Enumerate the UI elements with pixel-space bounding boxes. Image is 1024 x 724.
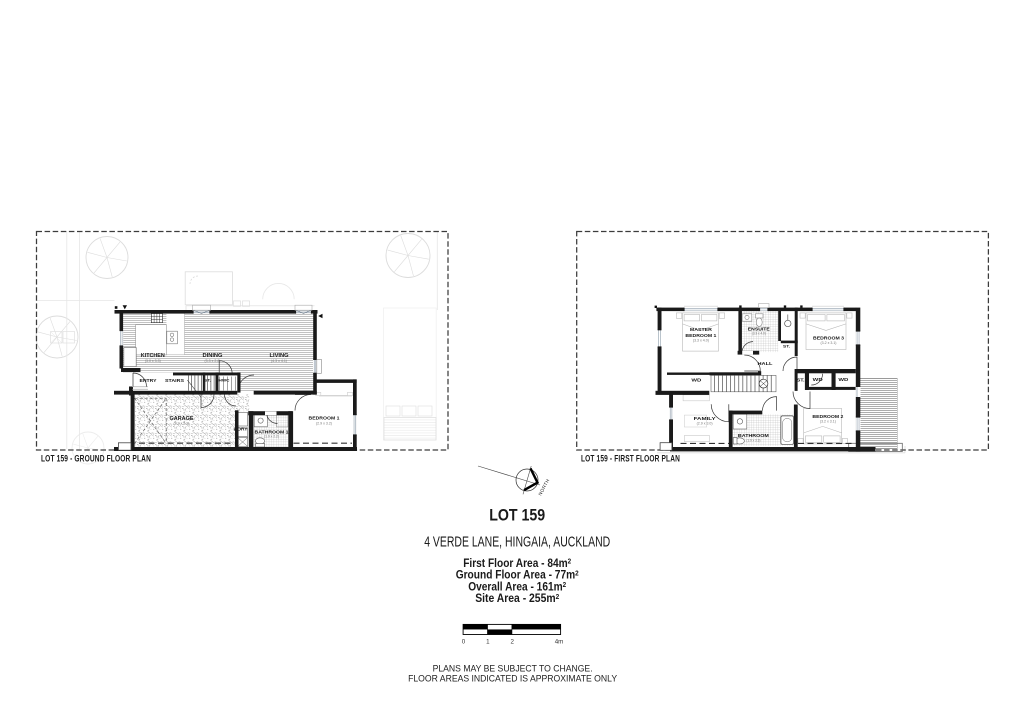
- svg-text:(3.2 x 3.1): (3.2 x 3.1): [821, 341, 837, 345]
- svg-text:2: 2: [510, 639, 514, 646]
- svg-text:(4.3 x 4.1): (4.3 x 4.1): [271, 359, 287, 363]
- svg-text:LOT 159: LOT 159: [489, 506, 545, 525]
- svg-text:WD: WD: [691, 377, 701, 382]
- svg-text:Site Area - 255m2: Site Area - 255m2: [475, 591, 559, 605]
- svg-text:0: 0: [462, 639, 466, 646]
- svg-text:HALL: HALL: [758, 361, 773, 367]
- svg-text:1: 1: [486, 639, 490, 646]
- svg-text:WD: WD: [813, 377, 823, 382]
- svg-text:ENTRY: ENTRY: [140, 378, 157, 383]
- svg-text:ST.: ST.: [783, 345, 790, 349]
- svg-text:L'DRY: L'DRY: [234, 427, 248, 432]
- svg-text:ENSUITE: ENSUITE: [748, 326, 770, 331]
- svg-text:(3.2 x 3.1): (3.2 x 3.1): [820, 420, 836, 424]
- svg-text:(2.9 x 3.2): (2.9 x 3.2): [316, 421, 332, 425]
- svg-text:(1.9 x 2.2): (1.9 x 2.2): [264, 435, 279, 439]
- svg-text:(3.3 x 2.8): (3.3 x 2.8): [205, 359, 221, 363]
- svg-text:MASTER: MASTER: [690, 327, 713, 333]
- svg-text:NORTH: NORTH: [537, 478, 550, 496]
- svg-text:FLOOR AREAS INDICATED IS APPRO: FLOOR AREAS INDICATED IS APPROXIMATE ONL…: [408, 674, 618, 685]
- svg-text:STAIRS: STAIRS: [165, 378, 184, 383]
- svg-text:ST.: ST.: [797, 377, 805, 382]
- svg-text:LOT 159 - FIRST FLOOR PLAN: LOT 159 - FIRST FLOOR PLAN: [581, 454, 680, 464]
- svg-text:WD: WD: [838, 377, 848, 382]
- svg-text:BATHROOM 1: BATHROOM 1: [255, 429, 289, 434]
- svg-text:LOT 159 - GROUND FLOOR PLAN: LOT 159 - GROUND FLOOR PLAN: [41, 454, 151, 464]
- svg-text:(2.9 x 5.9): (2.9 x 5.9): [174, 422, 190, 426]
- svg-text:(3.0 x 3.3): (3.0 x 3.3): [145, 359, 161, 363]
- svg-text:4 VERDE LANE, HINGAIA, AUCKLAN: 4 VERDE LANE, HINGAIA, AUCKLAND: [424, 535, 610, 551]
- svg-text:(2.9 x 3.0): (2.9 x 3.0): [697, 422, 713, 426]
- svg-text:ST.: ST.: [204, 379, 211, 383]
- svg-text:(3.3 x 4.0): (3.3 x 4.0): [693, 339, 709, 343]
- svg-text:(3.3 x 4.0): (3.3 x 4.0): [752, 332, 766, 336]
- svg-text:(1.9 x 3.3): (1.9 x 3.3): [746, 438, 760, 442]
- svg-text:HWC: HWC: [219, 379, 230, 383]
- svg-text:4m: 4m: [555, 639, 564, 646]
